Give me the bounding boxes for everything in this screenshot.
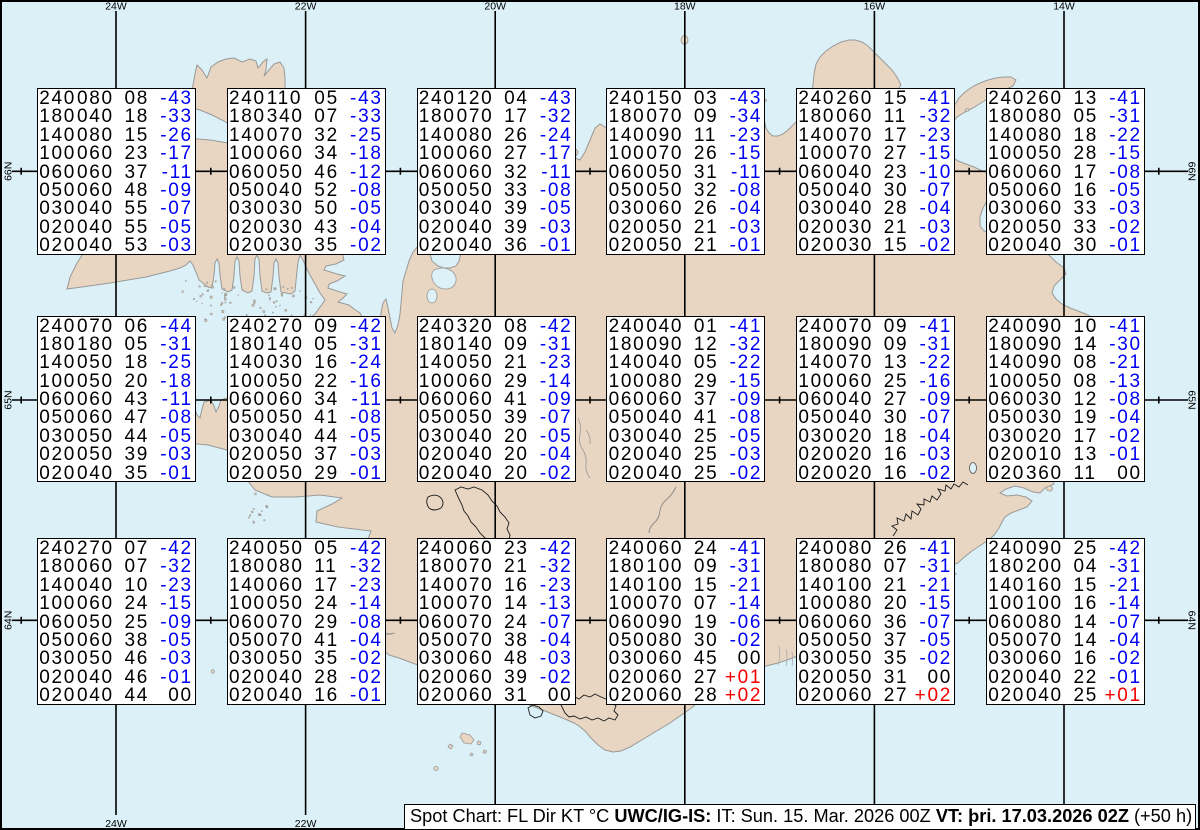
svg-text:65N: 65N xyxy=(3,390,15,409)
svg-text:18W: 18W xyxy=(674,1,696,13)
svg-text:16W: 16W xyxy=(864,1,886,13)
svg-text:22W: 22W xyxy=(295,1,317,13)
svg-text:24W: 24W xyxy=(105,1,127,13)
svg-text:66N: 66N xyxy=(3,162,15,181)
svg-text:66N: 66N xyxy=(1186,162,1198,181)
svg-text:14W: 14W xyxy=(1053,1,1075,13)
svg-text:20W: 20W xyxy=(484,1,506,13)
svg-text:65N: 65N xyxy=(1186,390,1198,409)
svg-text:64N: 64N xyxy=(3,611,15,630)
svg-text:64N: 64N xyxy=(1186,611,1198,630)
